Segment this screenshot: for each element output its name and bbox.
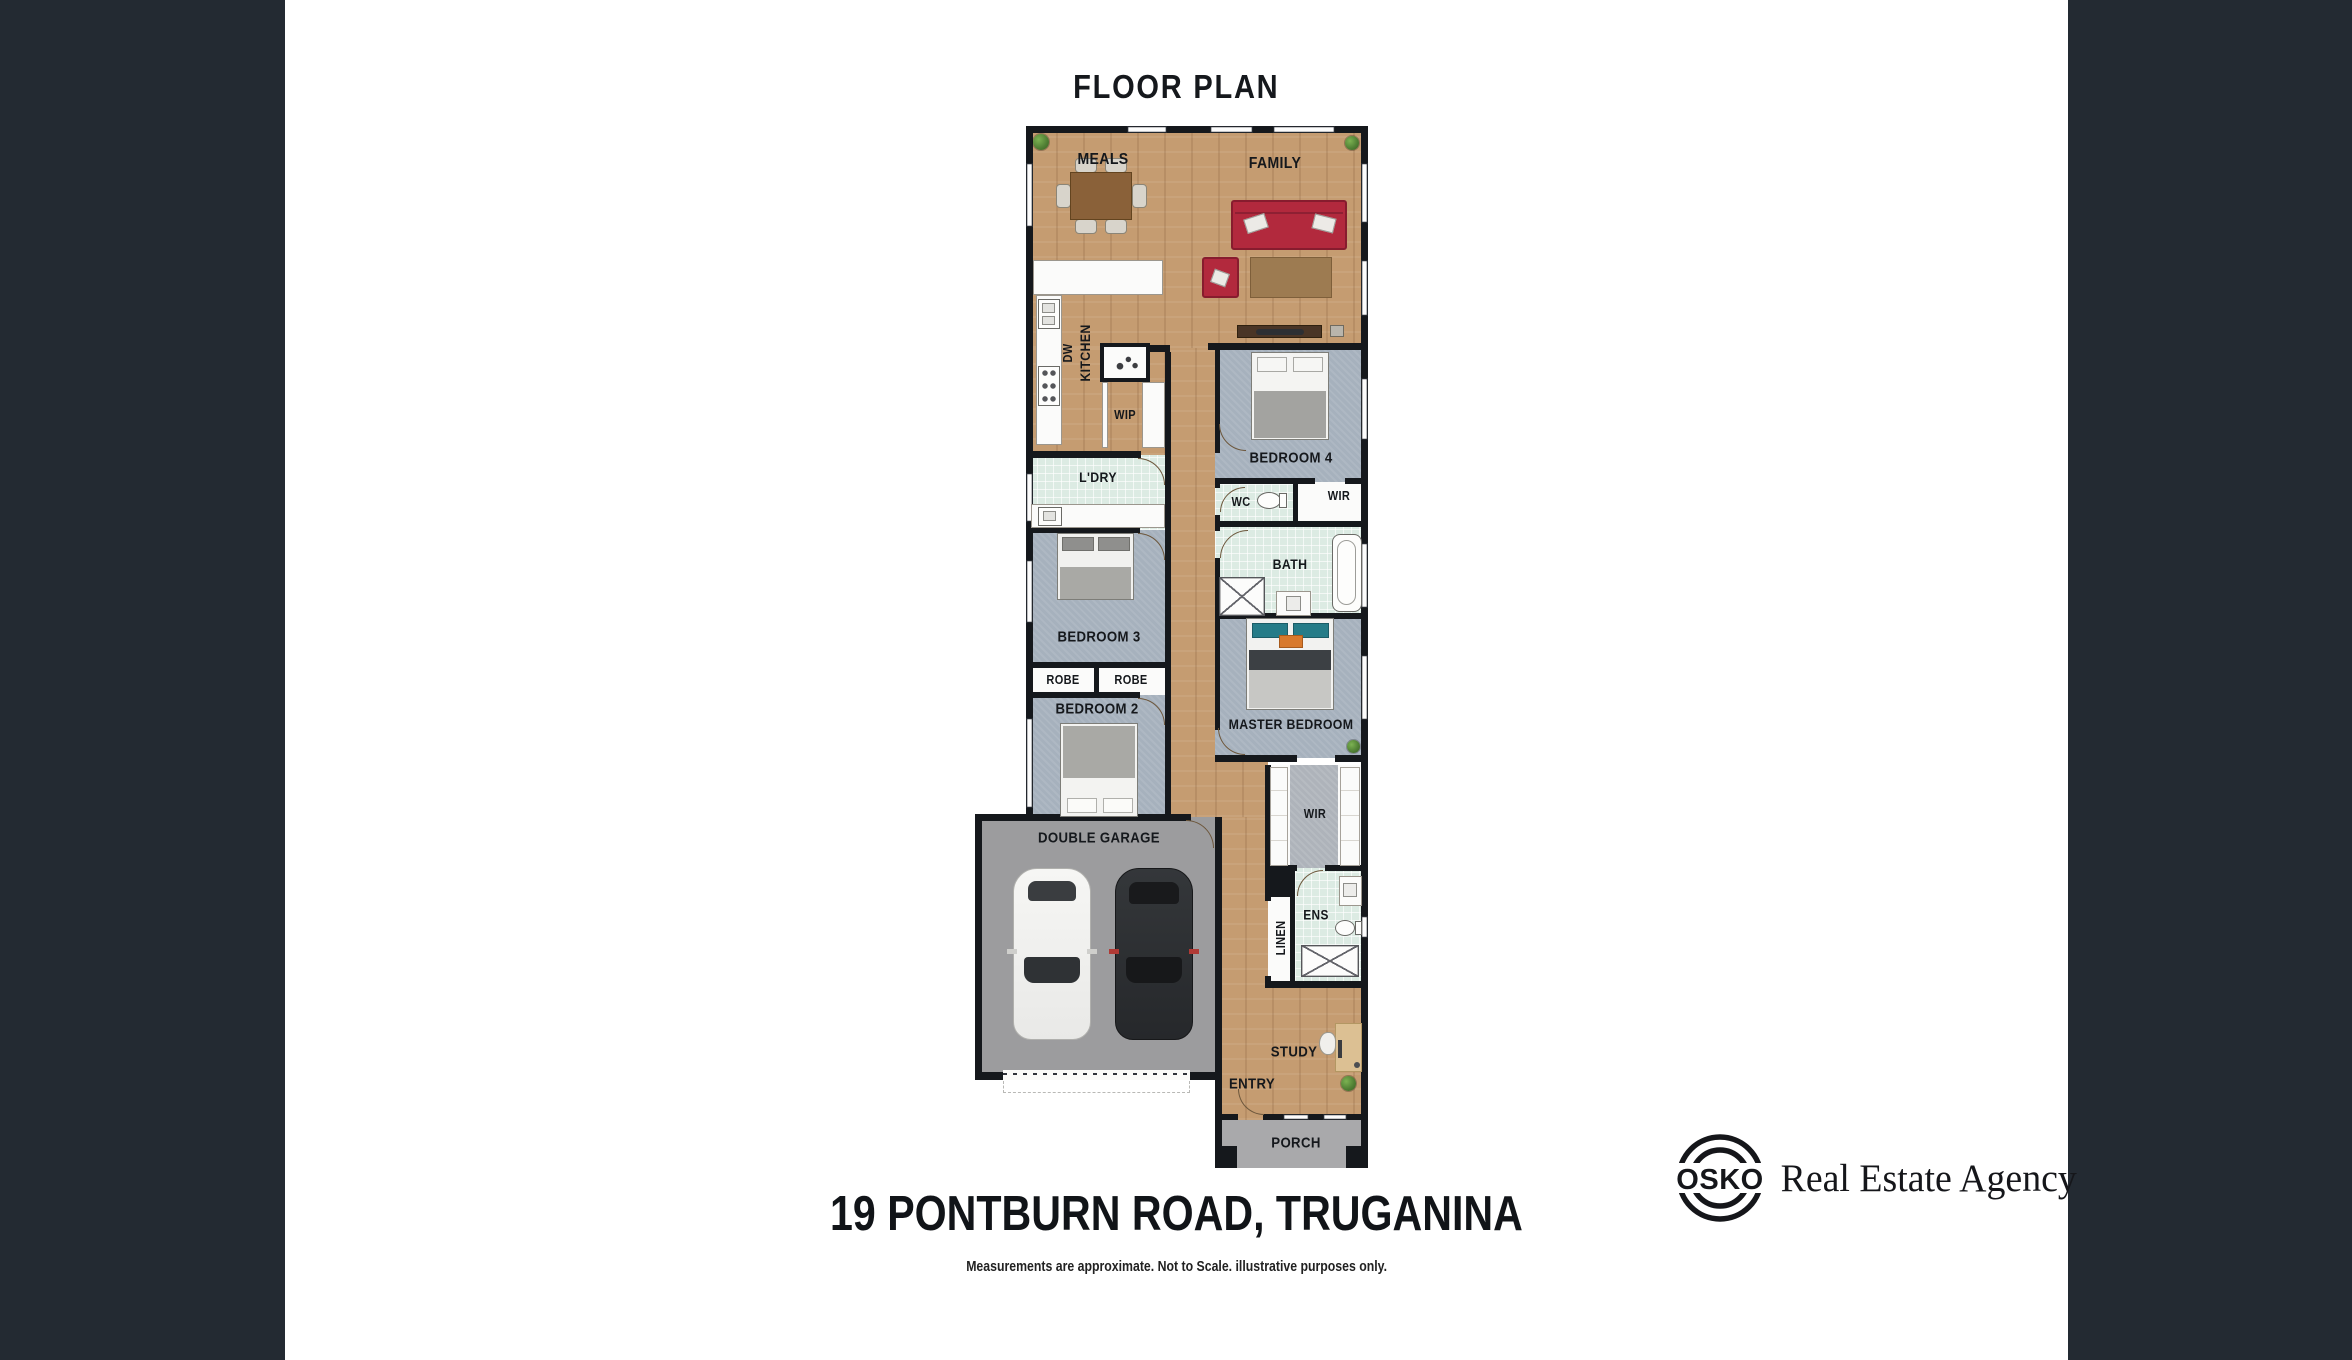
agency-name: Real Estate Agency [1781,1156,2077,1201]
sofa-seat-line [1235,212,1343,214]
room-label-wc: WC [1231,495,1250,509]
plant-icon [1345,136,1359,150]
window [1283,1114,1309,1120]
sink-bowl [1043,511,1056,521]
sink-bowl [1343,883,1357,897]
window [1026,560,1033,623]
wall [1026,451,1141,458]
car-mirror [1007,949,1017,954]
car-mirror [1189,949,1199,954]
window [1026,718,1033,808]
double-bed [1060,723,1138,817]
sink-bowl [1042,316,1055,325]
room-label-ldry: L'DRY [1079,469,1117,485]
wall [1165,352,1171,817]
garage-door-dashes [1003,1073,1190,1075]
garage-door [1003,1070,1190,1080]
wall [1215,521,1368,527]
blanket [1254,391,1326,438]
window [1026,163,1033,227]
master-bed [1246,618,1334,710]
room-label-master: MASTER BEDROOM [1229,716,1354,732]
content-area: FLOOR PLAN [285,0,2068,1360]
pillow [1062,537,1094,551]
svg-text:OSKO: OSKO [1676,1164,1763,1196]
toilet [1335,920,1355,936]
car-mirror [1087,949,1097,954]
throw-blanket [1249,650,1331,670]
agency-logo: OSKO Real Estate Agency [1674,1132,2081,1224]
wall [975,1072,1006,1080]
desk-chair [1319,1032,1336,1055]
car-rear-window [1028,881,1076,901]
room-label-study: STUDY [1271,1044,1318,1061]
floor-plan: ROBE ROBE [975,126,1368,1170]
page-title: FLOOR PLAN [285,68,2068,106]
blanket [1249,670,1331,708]
wall [1215,343,1220,453]
tv-console [1237,325,1322,338]
room-label-bedroom4: BEDROOM 4 [1249,450,1332,467]
driveway-outline [1003,1081,1190,1093]
room-label-wip: WIP [1114,408,1136,422]
rug [1250,257,1332,298]
kitchen-sink [1038,299,1060,329]
shower [1219,577,1265,616]
right-dark-panel [2068,0,2352,1360]
dining-chair [1056,184,1071,208]
car-mirror [1109,949,1119,954]
wall [1094,665,1099,695]
bath-vanity [1276,591,1311,616]
tv [1256,329,1304,335]
armchair [1202,257,1239,298]
sink-bowl [1042,303,1055,313]
wall [1263,1114,1368,1120]
desk [1335,1023,1362,1072]
window [1127,126,1167,133]
wall [1345,478,1368,484]
window [1361,916,1368,938]
left-dark-panel [0,0,285,1360]
wall [1215,755,1297,762]
room-label-ens: ENS [1303,908,1328,923]
sofa-cushion [1243,213,1269,234]
double-bed [1251,352,1329,440]
dining-chair [1075,219,1097,234]
room-label-dw: DW [1061,343,1075,362]
dining-table [1070,172,1132,220]
sink-bowl [1286,596,1301,611]
plant-icon [1347,740,1360,753]
bathtub-inner [1337,540,1356,605]
room-label-robe-left: ROBE [1046,673,1079,687]
room-label-linen: LINEN [1274,921,1288,956]
room-label-porch: PORCH [1271,1135,1320,1152]
room-label-wir-master: WIR [1304,807,1326,821]
laundry-sink [1038,507,1062,526]
pillow [1293,357,1323,372]
window [1361,260,1368,316]
porch-post [1215,1146,1237,1168]
toilet-cistern [1355,921,1362,935]
plant-icon [1341,1076,1356,1091]
car-rear-window [1129,882,1179,904]
shower [1301,945,1359,977]
room-label-bedroom3: BEDROOM 3 [1057,629,1140,646]
pillow [1103,798,1133,813]
room-label-family: FAMILY [1249,155,1301,173]
pillow [1257,357,1287,372]
toilet [1257,492,1281,509]
disclaimer: Measurements are approximate. Not to Sca… [285,1258,2068,1275]
double-bed [1057,533,1134,600]
pantry-shelf [1102,382,1108,448]
window [1361,163,1368,223]
wall [1215,478,1315,484]
dining-chair [1132,184,1147,208]
plant-icon [1033,134,1049,150]
car-black [1115,868,1193,1040]
wall [1293,482,1298,525]
porch-post [1346,1146,1368,1168]
pantry-shelf [1142,382,1165,448]
sofa-cushion [1312,214,1337,234]
speaker-box [1330,325,1344,337]
wall [1215,817,1222,1078]
monitor [1338,1040,1342,1058]
dining-chair [1105,219,1127,234]
cooktop [1038,366,1060,406]
room-label-garage: DOUBLE GARAGE [1038,830,1160,847]
wall [1026,692,1140,698]
wall [975,814,982,1080]
wall [1290,891,1295,985]
sofa [1231,200,1347,250]
window [1361,543,1368,608]
window [1361,655,1368,720]
ensuite-vanity [1339,876,1362,906]
wardrobe [1340,767,1360,866]
room-label-bath: BATH [1273,556,1308,572]
room-label-meals: MEALS [1077,151,1128,169]
room-label-entry: ENTRY [1229,1076,1275,1093]
hallway-corner-floor [1215,758,1268,817]
blanket [1063,726,1135,778]
pillow [1098,537,1130,551]
island-cabinet [1100,343,1150,382]
car-windshield [1126,957,1182,983]
kitchen-bench-top [1033,260,1163,295]
wall [1265,981,1368,988]
wall [1215,1114,1238,1120]
property-address-text: 19 PONTBURN ROAD, TRUGANINA [830,1186,1523,1242]
island-benchtop [1104,347,1146,378]
wardrobe [1270,767,1288,866]
car-windshield [1024,957,1080,983]
cushion-orange [1279,635,1303,648]
osko-logo-icon: OSKO [1674,1132,1766,1224]
window [1361,378,1368,440]
car-white [1013,868,1091,1040]
page-title-text: FLOOR PLAN [1073,68,1279,106]
hallway-floor [1168,348,1215,817]
wall [1335,755,1368,762]
room-label-bedroom2: BEDROOM 2 [1055,701,1138,718]
window [1323,1114,1347,1120]
bathtub [1332,534,1362,612]
room-label-kitchen: KITCHEN [1077,324,1093,381]
disclaimer-text: Measurements are approximate. Not to Sca… [966,1258,1387,1275]
blanket [1060,567,1131,599]
window [1210,126,1253,133]
armchair-cushion [1210,269,1230,288]
room-label-wir-bed4: WIR [1328,489,1350,503]
desk-item [1354,1062,1360,1068]
window [1273,126,1335,133]
hallway-lower-floor [1218,817,1268,985]
wall [1208,343,1368,350]
room-label-robe-right: ROBE [1114,673,1147,687]
pillow [1067,798,1097,813]
toilet-cistern [1279,493,1287,508]
